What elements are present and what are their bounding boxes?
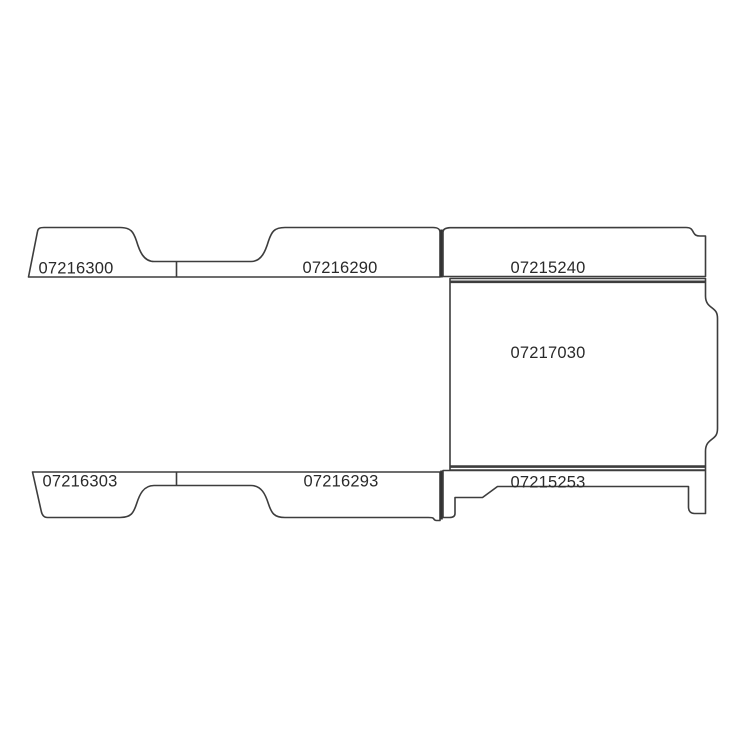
part-number-label-center: 07217030 (510, 344, 585, 362)
center-panel-outline (450, 279, 718, 471)
part-number-label-top-left: 07216300 (38, 260, 113, 278)
diagram-canvas: 07216300 07216290 07215240 07217030 0721… (0, 0, 750, 750)
part-number-label-top-right: 07215240 (510, 259, 585, 277)
part-number-label-top-middle: 07216290 (302, 259, 377, 277)
part-number-label-bottom-left: 07216303 (42, 473, 117, 491)
parts-diagram: 07216300 07216290 07215240 07217030 0721… (0, 0, 750, 750)
part-number-label-bottom-right: 07215253 (510, 474, 585, 492)
part-number-label-bottom-middle: 07216293 (303, 473, 378, 491)
